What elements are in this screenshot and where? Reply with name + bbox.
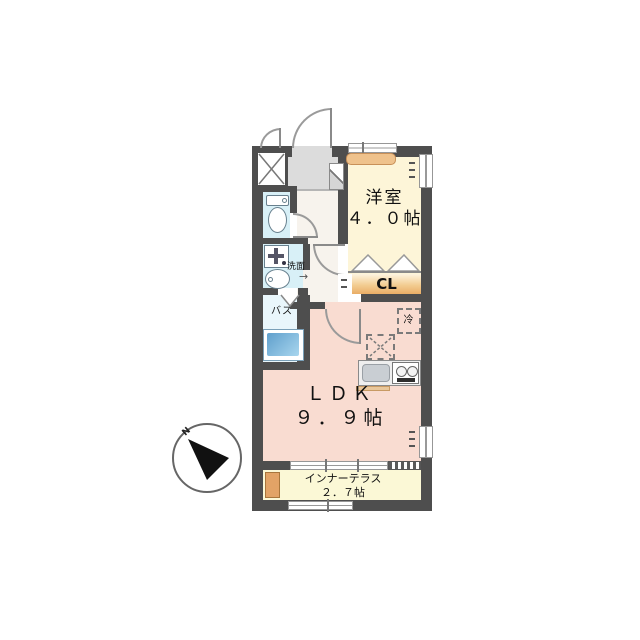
- closet-cl-band: CL: [352, 274, 421, 294]
- washer-pan: [264, 245, 289, 268]
- toilet-door-leaf: [293, 236, 318, 238]
- western-room-size: ４．０帖: [347, 209, 423, 230]
- closet-door-track-line: [348, 271, 421, 273]
- toilet-bowl: [268, 207, 287, 233]
- terrace-bottom-window-tick: [327, 499, 329, 512]
- closet-folding-doors-icon: [350, 252, 421, 273]
- bathtub: [263, 329, 304, 361]
- floorplan-canvas: 洗面 → バス 洋室 ４．０帖 CL 冷: [0, 0, 640, 640]
- western-room-top-window: [348, 143, 397, 153]
- toilet-flush-button: [282, 198, 287, 203]
- cupboard-x-icon: [368, 336, 393, 358]
- wall-cl-bottom: [361, 294, 421, 302]
- wall-toilet-washroom: [263, 238, 308, 244]
- kitchen-stove: [392, 362, 419, 384]
- compass-icon: N: [172, 423, 242, 493]
- terrace-louver-strip: [388, 461, 421, 470]
- terrace-bottom-window: [288, 501, 353, 510]
- wall-left: [252, 146, 263, 511]
- closet-label: CL: [376, 275, 397, 294]
- window-mark-2: [409, 169, 415, 171]
- wall-terrace-left: [263, 461, 290, 470]
- terrace-label-group: インナーテラス ２．７帖: [283, 472, 403, 499]
- terrace-storage-box: [265, 472, 280, 498]
- ldk-right-window: [419, 426, 433, 458]
- shoe-cabinet: [329, 163, 344, 190]
- bath-label: バス: [271, 306, 293, 319]
- closet-gap-mark-2: [341, 286, 347, 288]
- window-mark-1: [409, 162, 415, 164]
- stove-burner-left: [396, 366, 407, 377]
- meterbox-door-arc: [260, 128, 281, 148]
- ldk-door-leaf: [359, 309, 361, 344]
- ldk-label-group: ＬＤＫ ９．９帖: [283, 383, 398, 441]
- stove-grill: [397, 378, 415, 382]
- terrace-window-tick-1: [325, 459, 327, 472]
- wall-toilet-right-upper: [290, 192, 297, 213]
- western-room-label: 洋室: [366, 188, 404, 209]
- terrace-label: インナーテラス: [305, 472, 382, 486]
- meterbox-door-leaf: [279, 128, 281, 148]
- terrace-size: ２．７帖: [321, 486, 365, 500]
- washer-pan-drain: [282, 261, 286, 265]
- cupboard-space: [366, 334, 395, 360]
- kitchen-sink: [362, 364, 390, 382]
- washbasin-tap: [268, 277, 273, 282]
- window-mark-3: [409, 176, 415, 178]
- ldk-window-mark-1: [409, 431, 415, 433]
- washroom-entry-arrow: →: [299, 270, 308, 284]
- wall-washroom-bath-left: [263, 288, 278, 295]
- refrigerator-space: 冷: [397, 308, 421, 334]
- washer-pan-cross-h: [268, 254, 284, 258]
- pipe-space-x-icon: [258, 153, 285, 185]
- ldk-size: ９．９帖: [294, 407, 386, 431]
- closet-side-gap: [338, 274, 352, 294]
- terrace-window-tick-2: [357, 459, 359, 472]
- terrace-sliding-window: [290, 461, 388, 470]
- western-room-door-leaf: [313, 244, 345, 246]
- western-room-label-group: 洋室 ４．０帖: [348, 188, 421, 248]
- entrance-door-leaf: [330, 108, 332, 148]
- western-room-right-window: [419, 154, 433, 188]
- toilet-tank: [266, 195, 289, 206]
- pipe-space-box: [255, 150, 288, 188]
- western-room-counter: [346, 153, 396, 165]
- entrance-door-arc: [292, 108, 332, 148]
- ldk-window-mark-2: [409, 438, 415, 440]
- bathtub-water: [267, 333, 299, 356]
- stove-burner-right: [407, 366, 418, 377]
- ldk-label: ＬＤＫ: [306, 383, 375, 407]
- closet-gap-mark-1: [341, 279, 347, 281]
- wall-bath-bottom: [252, 362, 310, 370]
- refrigerator-label: 冷: [404, 315, 415, 328]
- ldk-window-mark-3: [409, 445, 415, 447]
